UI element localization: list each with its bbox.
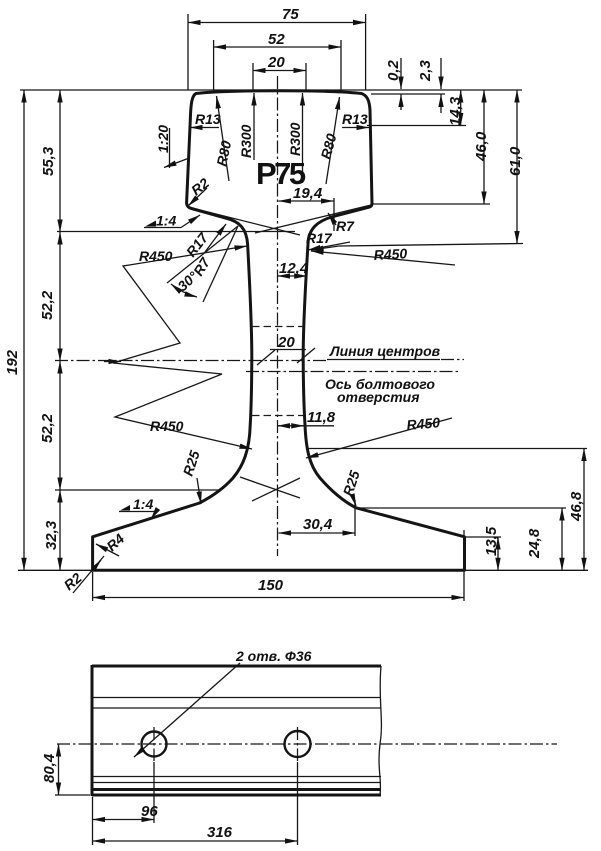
svg-text:R300: R300 xyxy=(287,122,303,156)
svg-text:316: 316 xyxy=(207,824,233,841)
svg-text:12,4: 12,4 xyxy=(279,260,309,277)
svg-text:46,8: 46,8 xyxy=(568,491,585,522)
svg-text:19,4: 19,4 xyxy=(293,185,323,202)
svg-text:14,3: 14,3 xyxy=(447,96,464,126)
svg-text:R450: R450 xyxy=(139,248,173,264)
svg-text:52,2: 52,2 xyxy=(39,413,56,443)
svg-text:20: 20 xyxy=(267,54,285,71)
svg-text:R450: R450 xyxy=(150,418,184,434)
svg-text:отверстия: отверстия xyxy=(337,389,419,405)
svg-text:192: 192 xyxy=(4,349,21,375)
svg-text:24,8: 24,8 xyxy=(526,528,543,559)
svg-text:55,3: 55,3 xyxy=(40,146,57,176)
svg-text:150: 150 xyxy=(258,577,284,594)
svg-text:80,4: 80,4 xyxy=(41,753,58,783)
svg-text:R17: R17 xyxy=(306,230,333,246)
svg-text:2,3: 2,3 xyxy=(417,59,434,82)
svg-text:R300: R300 xyxy=(238,124,254,158)
svg-text:96: 96 xyxy=(141,803,158,820)
svg-text:46,0: 46,0 xyxy=(473,131,490,162)
svg-text:2 отв. Ф36: 2 отв. Ф36 xyxy=(235,648,312,664)
svg-text:R7: R7 xyxy=(336,218,355,234)
svg-text:30,4: 30,4 xyxy=(303,516,333,533)
svg-text:61,0: 61,0 xyxy=(507,146,524,176)
svg-text:R450: R450 xyxy=(406,414,441,433)
svg-text:Линия центров: Линия центров xyxy=(329,343,441,359)
svg-text:11,8: 11,8 xyxy=(307,409,336,426)
svg-text:20: 20 xyxy=(277,334,295,351)
svg-text:52: 52 xyxy=(268,31,285,48)
svg-text:R450: R450 xyxy=(373,245,407,263)
svg-text:1:4: 1:4 xyxy=(133,496,153,512)
svg-text:R13: R13 xyxy=(195,111,221,127)
svg-text:13,5: 13,5 xyxy=(483,526,500,556)
svg-text:75: 75 xyxy=(282,6,299,23)
svg-text:32,3: 32,3 xyxy=(43,520,60,550)
svg-text:52,2: 52,2 xyxy=(39,290,56,320)
svg-text:1:4: 1:4 xyxy=(156,213,176,229)
svg-text:1:20: 1:20 xyxy=(155,125,171,153)
svg-text:R13: R13 xyxy=(342,111,368,127)
svg-text:0,2: 0,2 xyxy=(385,59,402,81)
